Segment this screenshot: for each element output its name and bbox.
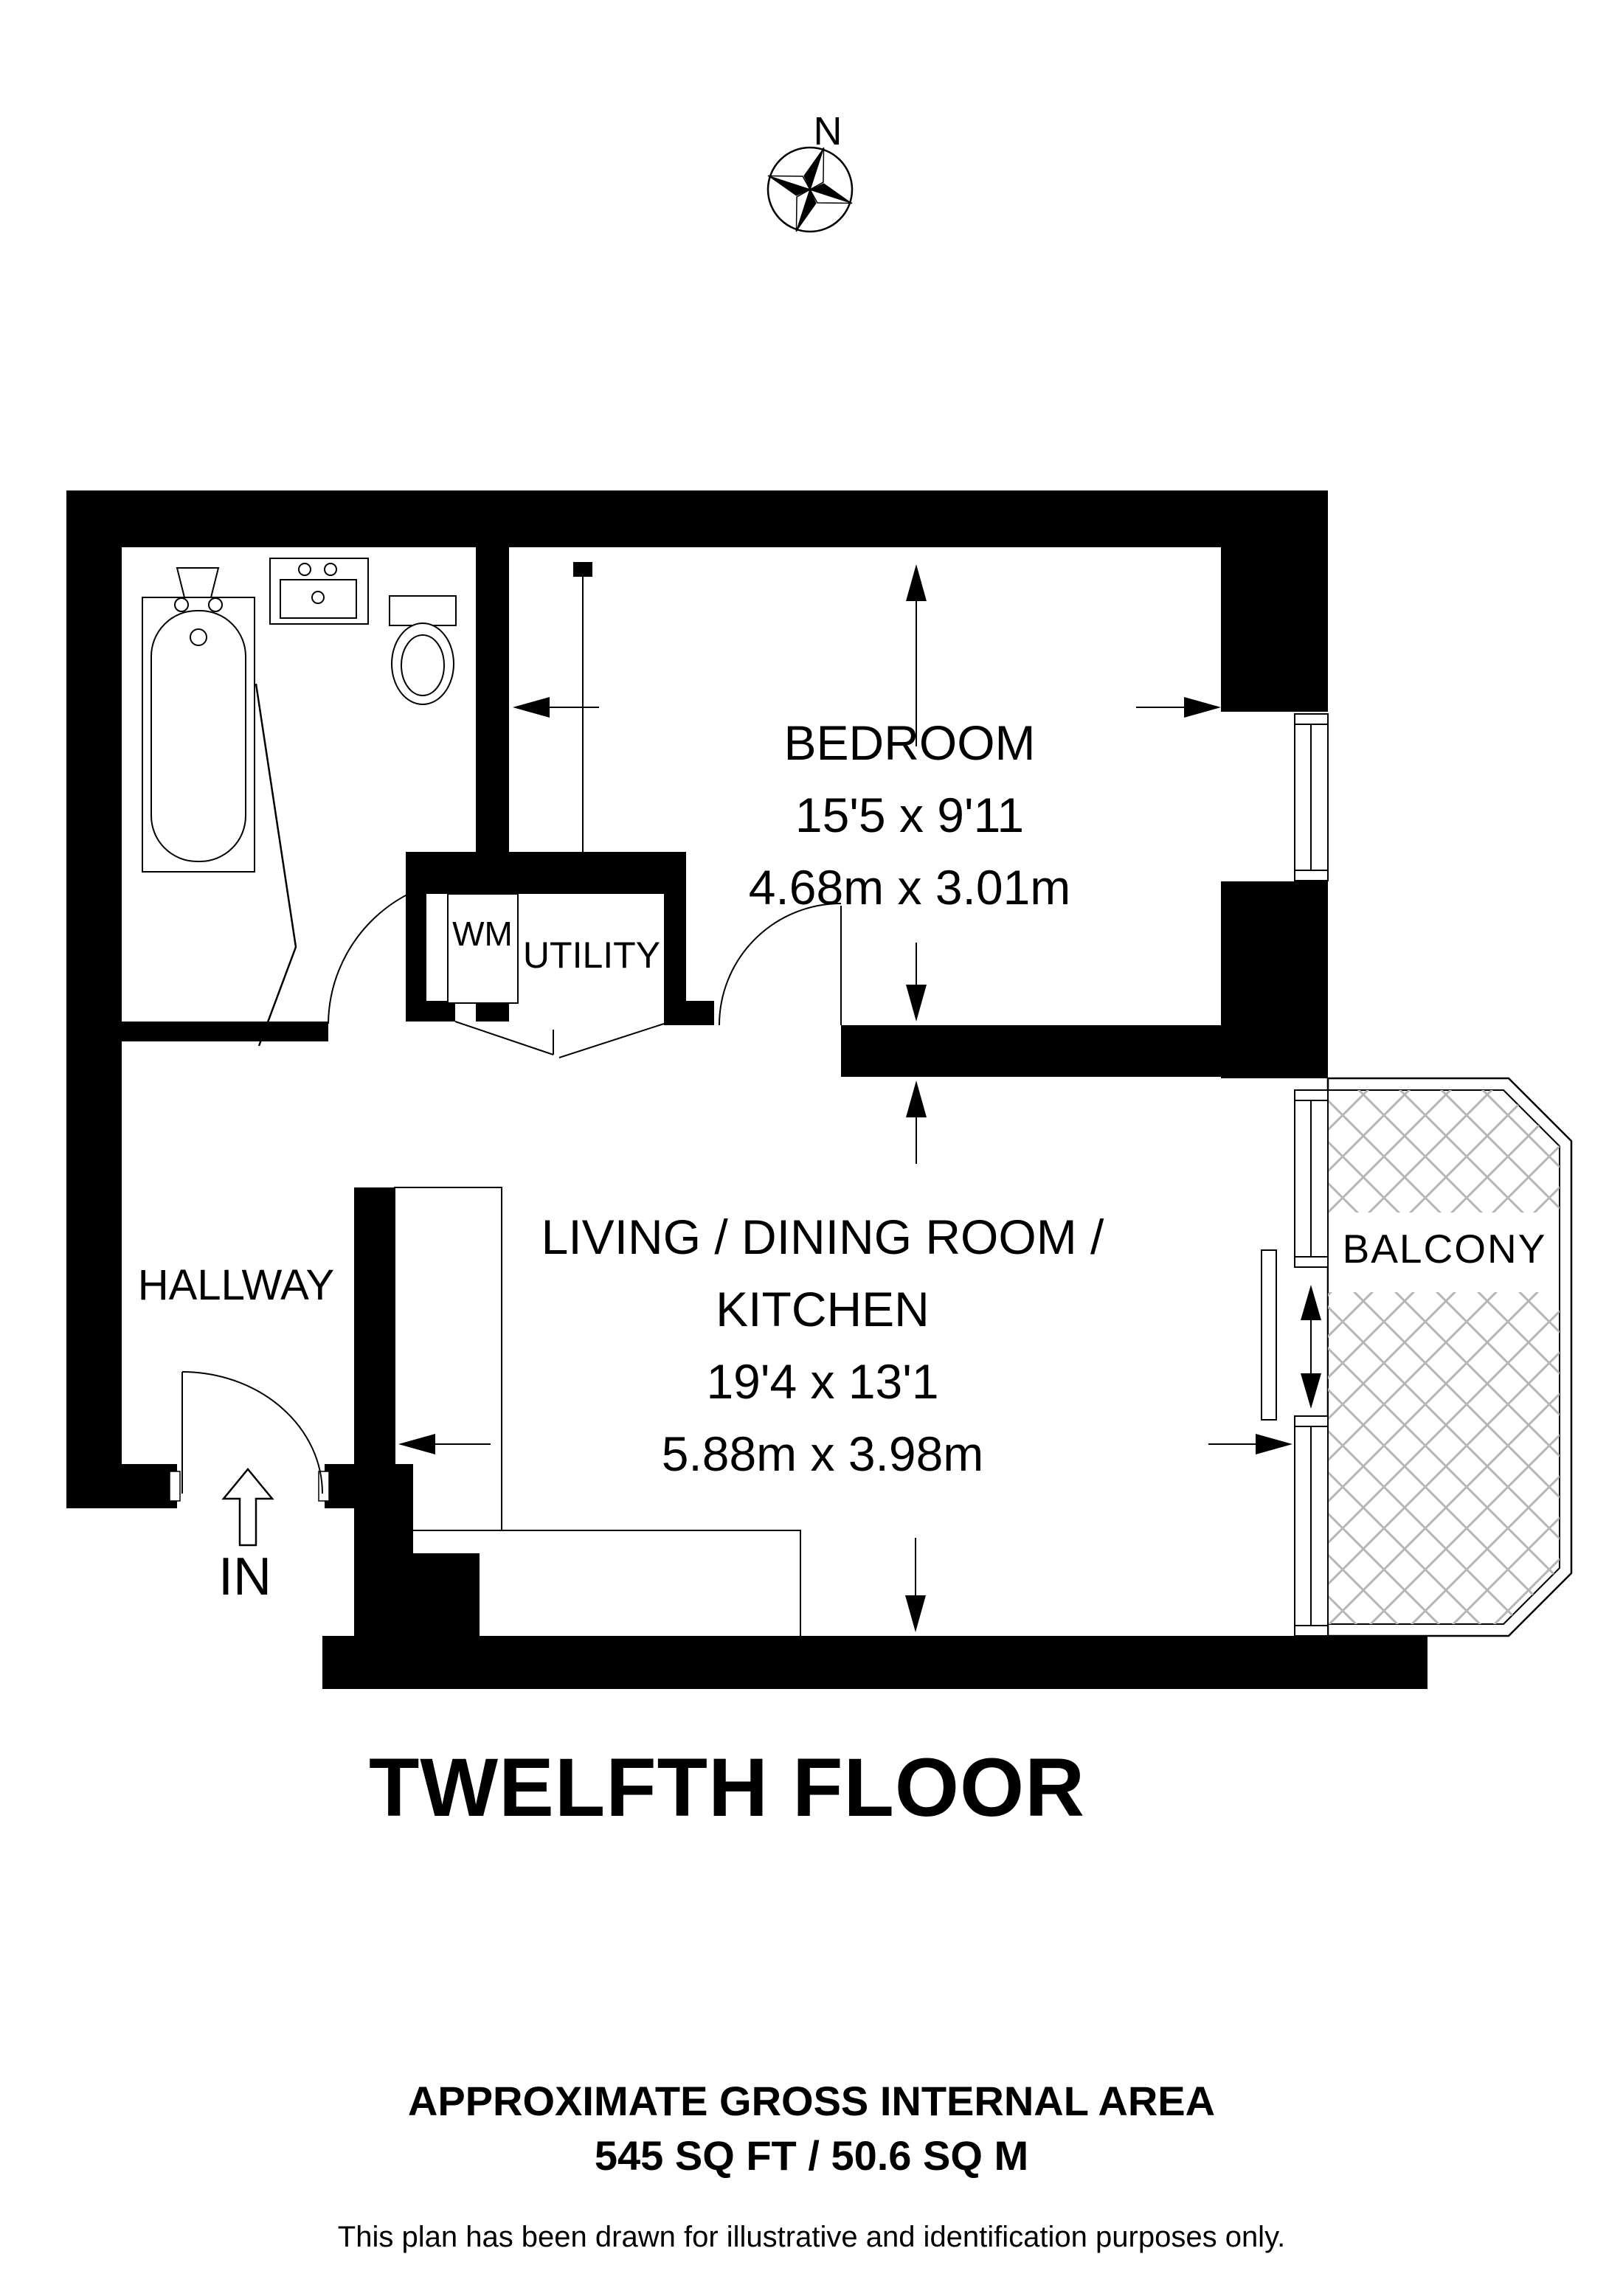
bedroom-window-icon [1295,714,1328,881]
toilet-icon [390,596,456,704]
washing-machine-label: WM [452,915,513,953]
wall [66,490,1328,547]
dimension-arrow-right [1136,697,1221,718]
utility-label: UTILITY [523,934,660,976]
floorplan-page: N [0,0,1623,2296]
wall [406,852,686,894]
sink-icon [270,558,368,624]
area-heading: APPROXIMATE GROSS INTERNAL AREA [408,2078,1215,2124]
dimension-arrow-down-living [905,1538,926,1632]
compass-icon: N [754,109,865,246]
wall [664,1001,714,1025]
bedroom-dims-imperial: 15'5 x 9'11 [795,788,1024,842]
hallway-label: HALLWAY [138,1261,334,1309]
dimension-arrow-right-living [1208,1434,1292,1454]
living-dims-metric: 5.88m x 3.98m [662,1426,984,1481]
living-label-line2: KITCHEN [716,1282,930,1336]
living-dims-imperial: 19'4 x 13'1 [706,1354,938,1409]
walls [66,490,1428,1689]
floor-title: TWELFTH FLOOR [369,1741,1085,1834]
footer: APPROXIMATE GROSS INTERNAL AREA 545 SQ F… [338,2078,1285,2253]
entrance-in-label: IN [218,1547,271,1606]
balcony-window-upper [1295,1090,1328,1267]
wall [322,1636,1428,1689]
bathtub-icon [142,568,255,872]
disclaimer-text: This plan has been drawn for illustrativ… [338,2221,1285,2253]
sliding-door-arrow [1301,1285,1321,1409]
wall [66,547,122,1508]
floorplan-svg: N [0,0,1623,2296]
utility-bifold-doors [455,1022,664,1058]
wall [354,1508,413,1636]
dimension-arrow-up-living [906,1081,927,1164]
entrance-in-arrow-icon [224,1469,272,1545]
compass-north-label: N [814,109,842,153]
balcony-label: BALCONY [1343,1226,1547,1272]
wall [413,1553,480,1636]
door-jamb [170,1471,180,1501]
balcony-window-lower [1295,1416,1328,1636]
dimension-arrow-down-bedroom [906,943,927,1022]
balcony-hatch [1328,1090,1560,1624]
area-value: 545 SQ FT / 50.6 SQ M [595,2132,1028,2179]
wall [1221,547,1328,712]
sliding-door-panel [1262,1250,1276,1420]
wall [122,1022,328,1041]
shower-screen-icon [256,684,296,1046]
bedroom-door [719,904,841,1025]
wall [354,1187,395,1464]
bedroom-label: BEDROOM [783,715,1035,770]
wall [406,1001,455,1022]
dimension-arrow-left-living [398,1434,491,1454]
dimension-arrow-left [513,697,599,718]
wall [325,1464,413,1508]
bedroom-dims-metric: 4.68m x 3.01m [749,860,1071,915]
living-label-line1: LIVING / DINING ROOM / [541,1210,1104,1264]
wall [841,1025,1328,1077]
balcony-structure [1262,1078,1571,1636]
wall [66,1464,177,1508]
